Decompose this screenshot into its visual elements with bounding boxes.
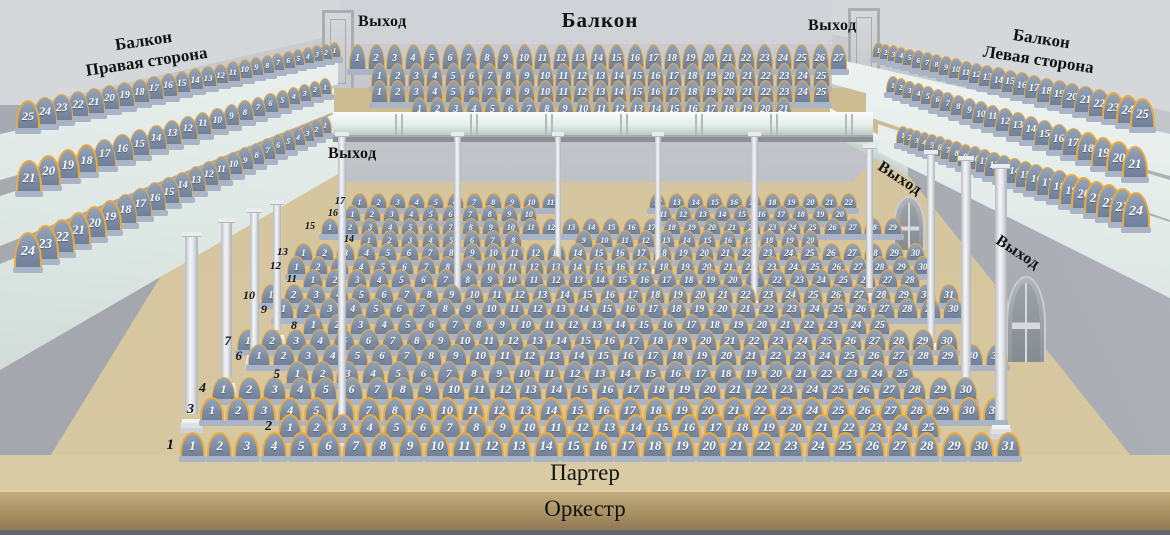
balcony-center-title: Балкон [480,8,720,33]
exit-label-top-left: Выход [358,13,407,31]
column [995,168,1007,420]
row-label: 3 [170,402,194,418]
column [454,136,461,296]
row-label: 10 [231,288,255,303]
row-label: 5 [256,366,280,382]
row-label: 4 [182,381,206,397]
column [927,154,935,338]
row-label: 14 [330,234,354,245]
row-label: 2 [248,419,272,435]
row-label: 16 [314,208,338,219]
exit-label-mid-left: Выход [328,145,377,163]
balustrade-shadow [333,137,873,142]
stage-edge [0,530,1170,535]
row-label: 12 [257,260,281,272]
arched-window-right-wall [1006,276,1046,362]
column [250,212,259,350]
column [866,148,873,288]
row-label: 17 [321,196,345,207]
row-label: 7 [207,333,231,349]
orchestra-label: Оркестр [0,496,1170,522]
row-label: 8 [273,318,297,333]
row-label: 11 [273,273,297,285]
column [751,136,758,296]
parterre-label: Партер [0,460,1170,486]
column [338,136,346,432]
row-label: 13 [264,246,288,258]
balcony-balustrade [333,112,873,137]
row-label: 9 [243,302,267,317]
row-label: 1 [150,437,174,454]
exit-label-top-right: Выход [808,17,857,35]
column [961,160,971,378]
row-label: 6 [218,348,242,364]
seat[interactable]: 27 [844,218,862,236]
theater-seat-map: Балкон Балкон Правая сторона Балкон Лева… [0,0,1170,535]
column [655,136,661,264]
row-label: 15 [291,221,315,232]
seat[interactable]: 26 [824,218,842,236]
column [555,136,561,264]
